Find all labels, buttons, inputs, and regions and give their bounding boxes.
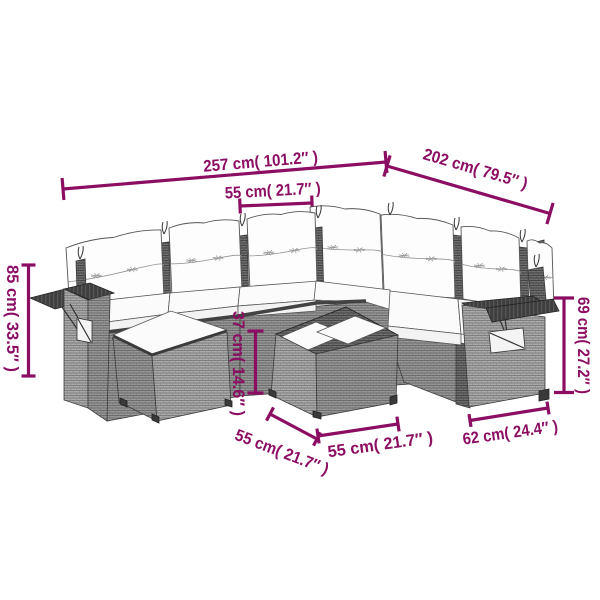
- svg-text:37 cm( 14.6″ ): 37 cm( 14.6″ ): [229, 311, 247, 416]
- svg-text:85 cm( 33.5″ ): 85 cm( 33.5″ ): [3, 265, 21, 372]
- svg-text:69 cm( 27.2″ ): 69 cm( 27.2″ ): [574, 297, 592, 394]
